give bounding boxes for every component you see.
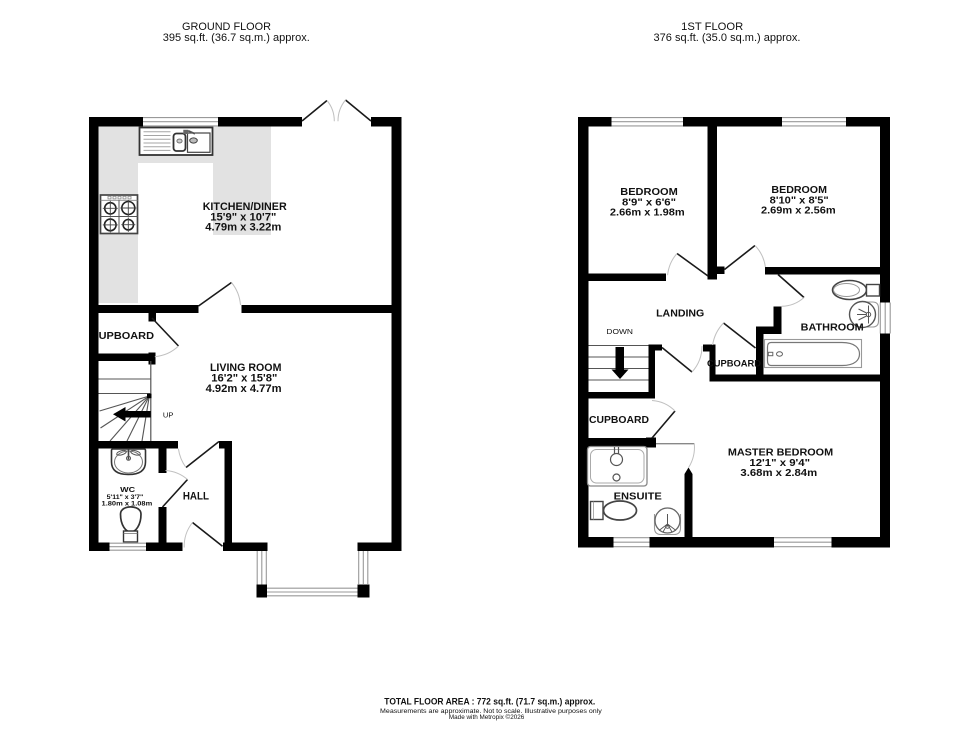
svg-text:395 sq.ft. (36.7 sq.m.) approx: 395 sq.ft. (36.7 sq.m.) approx. (163, 32, 310, 44)
svg-text:2.66m x 1.98m: 2.66m x 1.98m (610, 207, 685, 219)
svg-text:CUPBOARD: CUPBOARD (589, 415, 649, 426)
svg-text:TOTAL FLOOR AREA : 772 sq.ft.: TOTAL FLOOR AREA : 772 sq.ft. (71.7 sq.m… (384, 697, 595, 708)
svg-text:4.92m x 4.77m: 4.92m x 4.77m (206, 383, 282, 395)
svg-text:3.68m x 2.84m: 3.68m x 2.84m (740, 467, 817, 479)
svg-text:LANDING: LANDING (656, 308, 704, 320)
svg-text:HALL: HALL (183, 491, 209, 503)
svg-text:376 sq.ft. (35.0 sq.m.) approx: 376 sq.ft. (35.0 sq.m.) approx. (654, 32, 801, 44)
svg-text:UP: UP (163, 411, 174, 420)
svg-text:BATHROOM: BATHROOM (801, 322, 864, 334)
svg-text:4.79m x 3.22m: 4.79m x 3.22m (205, 222, 281, 234)
svg-text:Made with Metropix ©2026: Made with Metropix ©2026 (449, 713, 525, 721)
svg-text:DOWN: DOWN (606, 327, 633, 336)
svg-text:WC: WC (120, 487, 135, 494)
svg-text:UPBOARD: UPBOARD (99, 331, 154, 342)
svg-text:CUPBOARD: CUPBOARD (707, 359, 761, 370)
svg-text:1.80m x 1.08m: 1.80m x 1.08m (102, 501, 153, 508)
svg-text:2.69m x 2.56m: 2.69m x 2.56m (761, 205, 836, 217)
